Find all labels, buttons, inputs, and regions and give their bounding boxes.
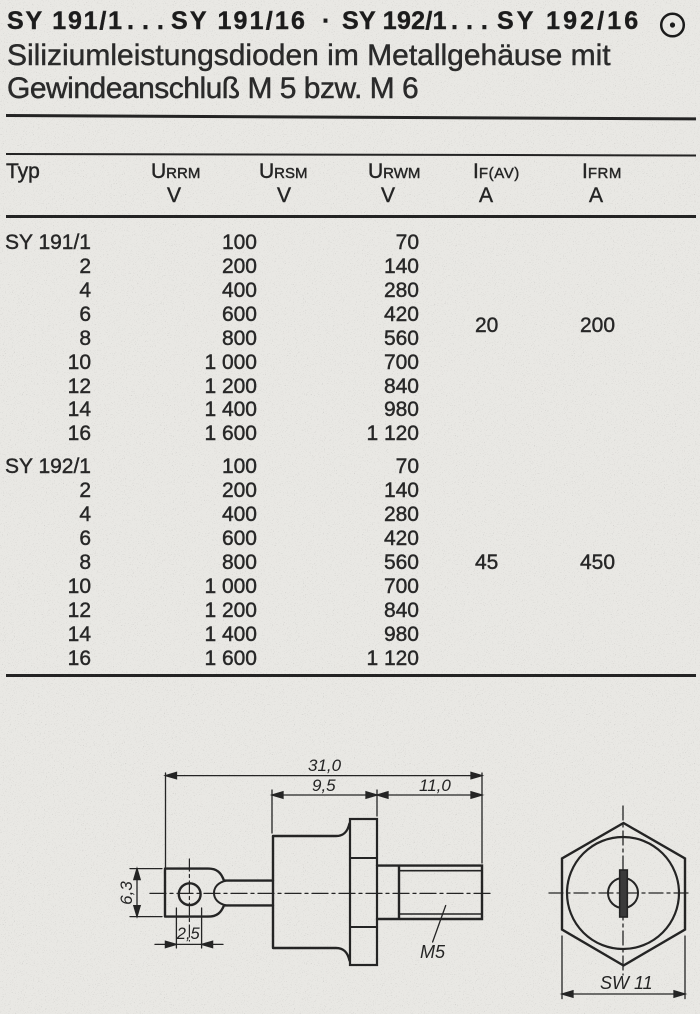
svg-text:2,5: 2,5 [176, 925, 201, 943]
svg-text:M5: M5 [420, 942, 446, 962]
svg-text:SW 11: SW 11 [600, 973, 653, 993]
svg-text:6,3: 6,3 [117, 881, 136, 905]
svg-text:31,0: 31,0 [308, 756, 342, 775]
svg-text:11,0: 11,0 [419, 776, 451, 795]
svg-text:9,5: 9,5 [312, 776, 336, 795]
